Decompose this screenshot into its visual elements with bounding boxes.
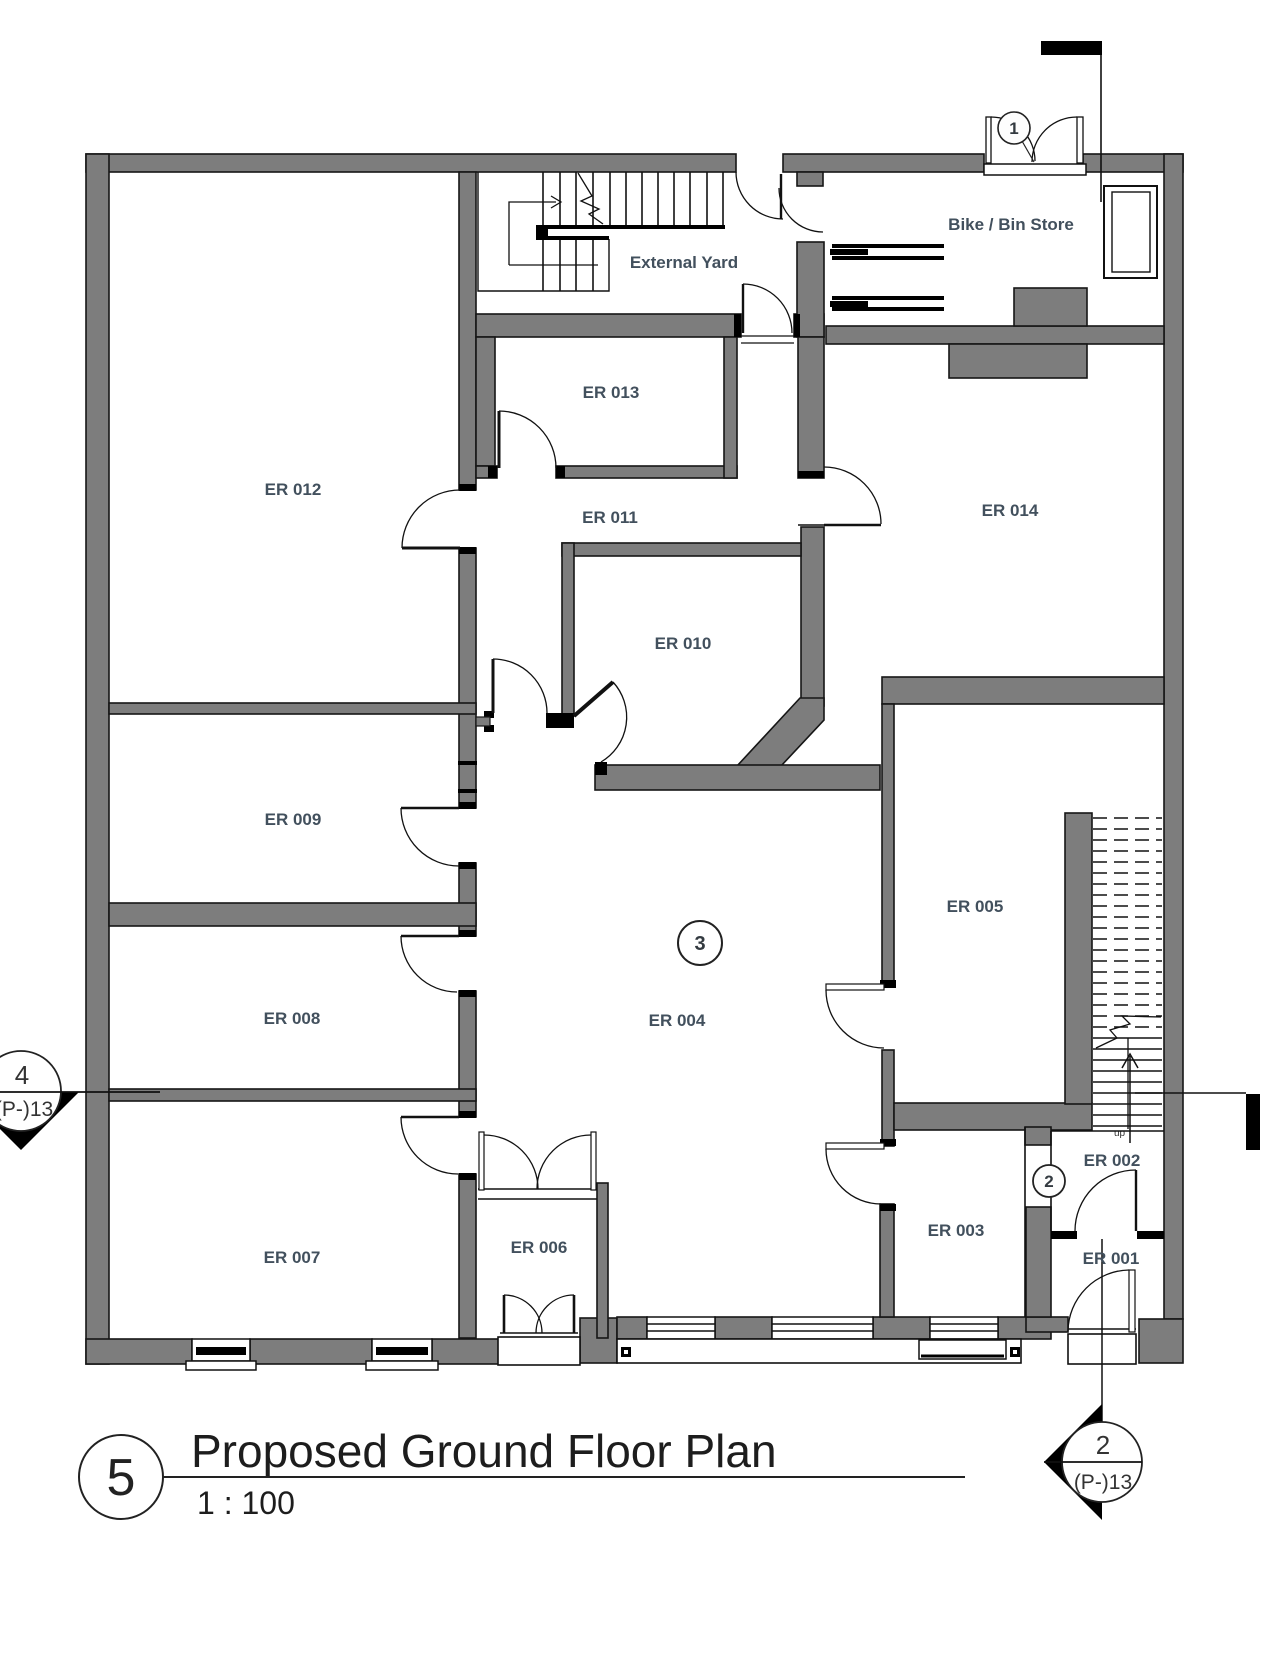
svg-text:ER 013: ER 013	[583, 383, 640, 402]
svg-text:(P-)13: (P-)13	[1074, 1471, 1132, 1494]
svg-text:(P-)13: (P-)13	[0, 1098, 53, 1121]
svg-text:up: up	[1114, 1128, 1126, 1139]
svg-text:ER 002: ER 002	[1084, 1151, 1141, 1170]
svg-text:ER 003: ER 003	[928, 1221, 985, 1240]
svg-text:ER 006: ER 006	[511, 1238, 568, 1257]
svg-text:2: 2	[1096, 1430, 1110, 1460]
svg-text:ER 005: ER 005	[947, 897, 1004, 916]
svg-text:4: 4	[15, 1060, 29, 1090]
svg-text:1: 1	[1009, 119, 1018, 138]
svg-text:ER 001: ER 001	[1083, 1249, 1140, 1268]
svg-text:ER 010: ER 010	[655, 634, 712, 653]
svg-text:Bike / Bin Store: Bike / Bin Store	[948, 215, 1074, 234]
svg-text:ER 012: ER 012	[265, 480, 322, 499]
svg-text:ER 004: ER 004	[649, 1011, 706, 1030]
svg-text:3: 3	[694, 933, 705, 955]
svg-text:5: 5	[107, 1449, 136, 1507]
svg-text:Proposed Ground Floor Plan: Proposed Ground Floor Plan	[191, 1425, 777, 1477]
svg-text:1 : 100: 1 : 100	[197, 1485, 295, 1521]
svg-text:External Yard: External Yard	[630, 253, 738, 272]
svg-text:ER 009: ER 009	[265, 810, 322, 829]
svg-text:ER 008: ER 008	[264, 1009, 321, 1028]
svg-text:ER 011: ER 011	[582, 508, 638, 527]
svg-text:2: 2	[1044, 1172, 1053, 1191]
svg-text:ER 014: ER 014	[982, 501, 1039, 520]
svg-text:ER 007: ER 007	[264, 1248, 321, 1267]
